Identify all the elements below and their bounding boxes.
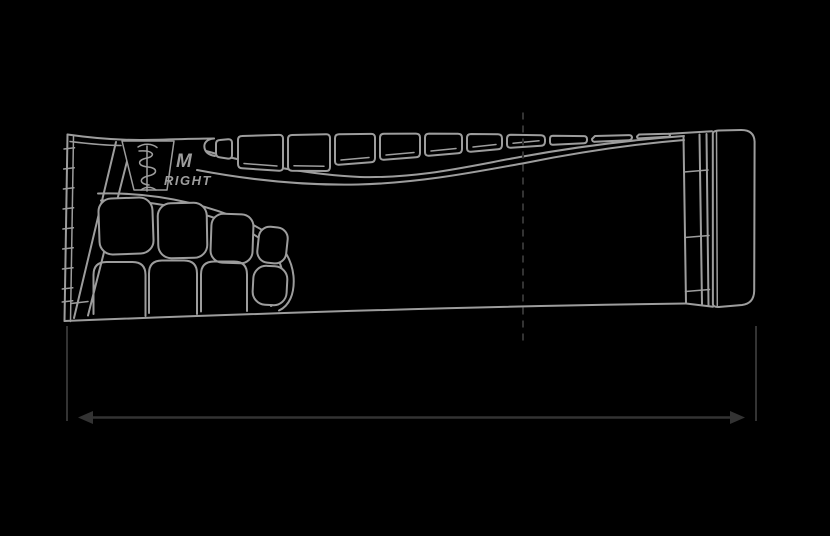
clamp-tick (684, 170, 708, 172)
grip-left-end-edge (65, 135, 68, 322)
clamp-line-outer (684, 137, 687, 304)
clamp-tick (685, 236, 709, 238)
top-pad (637, 134, 670, 139)
page-background: { "drawing": { "size_label": "M", "side_… (0, 0, 830, 536)
arrowhead-right-icon (730, 411, 745, 424)
end-cap-outline (713, 130, 755, 307)
top-pad (425, 134, 462, 156)
palm-pad (98, 197, 154, 255)
length-dimension (67, 326, 756, 424)
drawing-canvas: M RIGHT (0, 0, 830, 536)
side-label: RIGHT (164, 173, 212, 188)
top-pad (550, 136, 587, 145)
grip-bottom-edge (65, 304, 687, 322)
grip-top-edge (68, 135, 215, 141)
top-pad (380, 134, 420, 160)
top-pad-row (216, 134, 670, 171)
top-pad (216, 139, 232, 158)
palm-pad (256, 226, 289, 265)
end-cap-inner-line (717, 131, 718, 307)
arrowhead-left-icon (78, 411, 93, 424)
clamp-tick (686, 290, 710, 292)
palm-pad (94, 262, 146, 316)
palm-pad (149, 261, 197, 315)
top-pad (592, 135, 632, 142)
palm-pad-grid (94, 193, 294, 316)
size-label: M (176, 151, 193, 172)
top-pad (467, 134, 502, 152)
clamp-line-inner (700, 135, 703, 305)
top-parting-line (70, 142, 121, 146)
palm-pad (158, 203, 208, 259)
end-cap-left-edge (707, 134, 709, 306)
grip-blueprint: M RIGHT (0, 0, 830, 536)
left-bottom-junction-tick (71, 302, 88, 304)
palm-pad (252, 265, 288, 306)
palm-pad (201, 262, 247, 312)
palm-pad (210, 213, 254, 263)
end-cap (707, 130, 755, 307)
